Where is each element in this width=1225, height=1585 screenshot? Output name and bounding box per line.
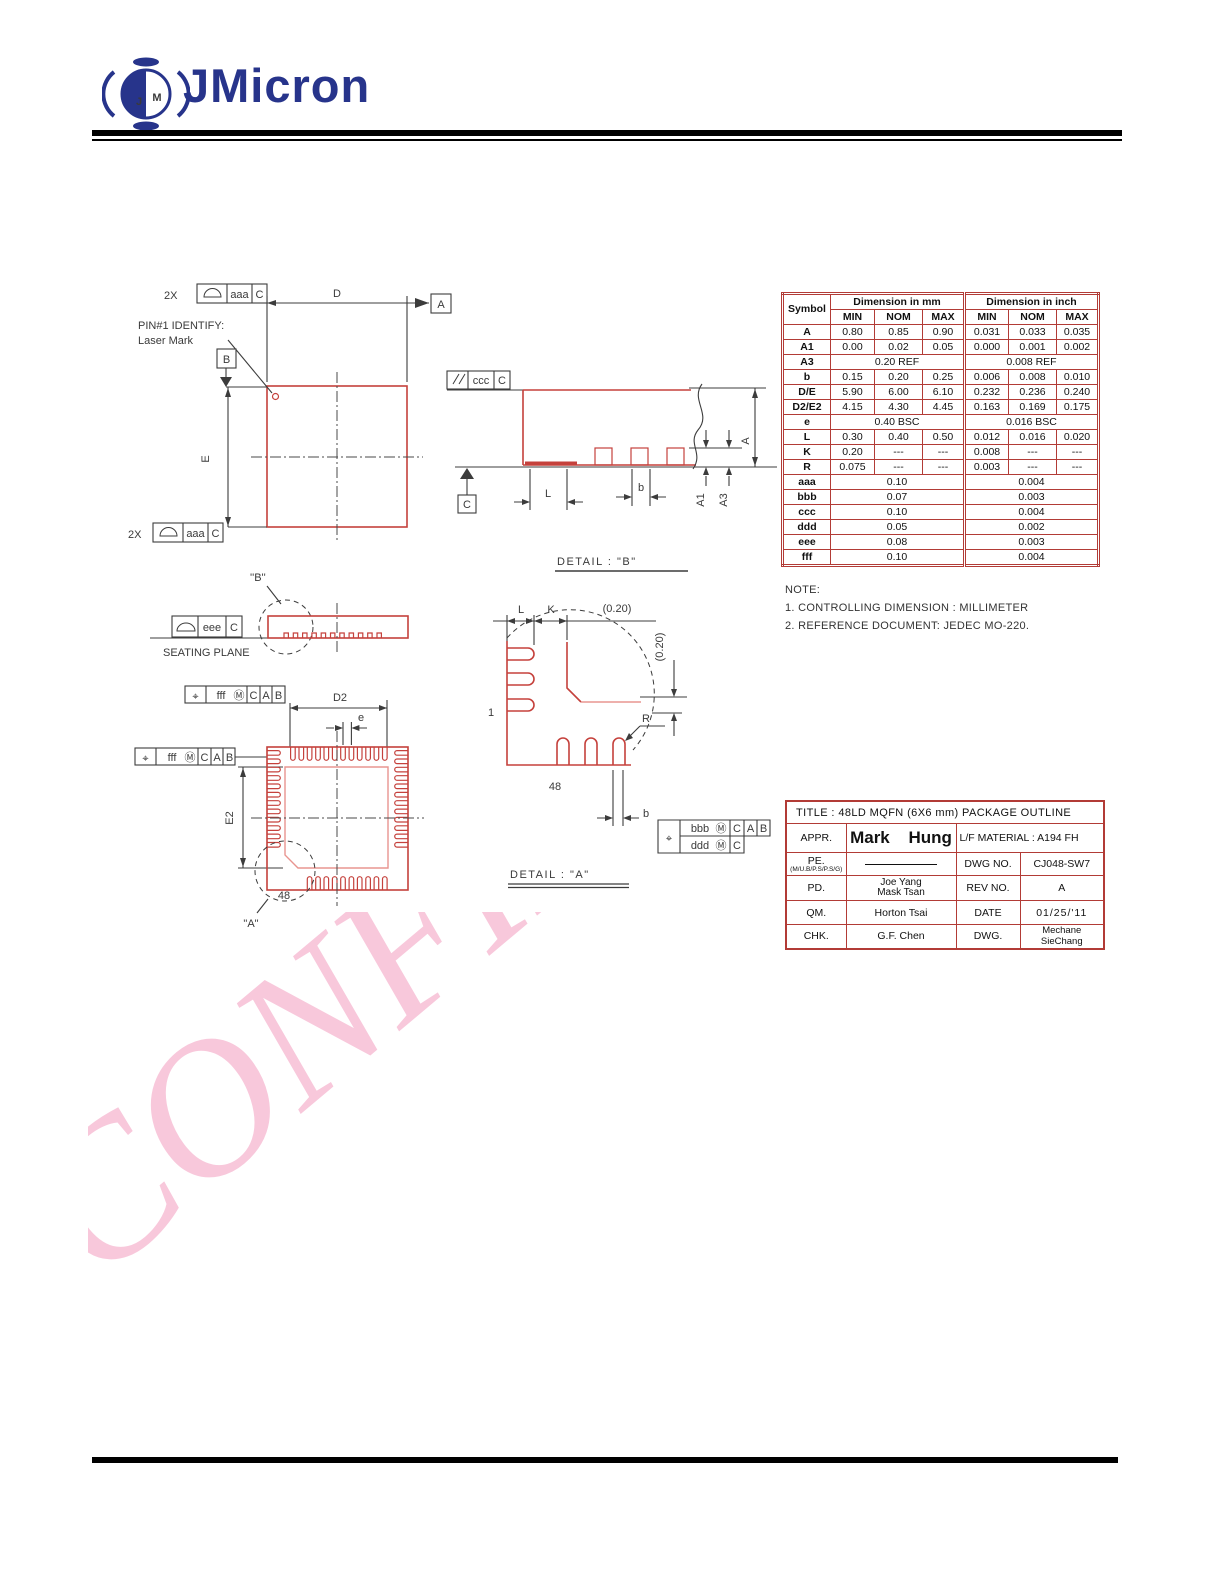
fcf-aaa-value: aaa [186,528,205,540]
datum-triangle-icon [415,298,429,308]
min-header-cell: MIN [831,310,875,325]
value-cell: 0.016 [1009,430,1057,445]
footer-rule [92,1457,1118,1463]
value-cell: 0.50 [923,430,965,445]
value-cell: 6.00 [875,385,923,400]
fcf-datum-ref: C [498,375,506,387]
symbol-cell: D2/E2 [783,400,831,415]
detail-a-ref: "A" [243,918,258,930]
symbol-cell: aaa [783,475,831,490]
lead-pattern-right [395,751,408,848]
symbol-cell: b [783,370,831,385]
pin48-label: 48 [278,890,290,902]
value-cell: 0.80 [831,325,875,340]
r-leader [628,726,665,738]
lk-dimension-lines [493,615,656,645]
fcf-datum-ref: B [226,752,233,764]
e2-dim-label: E2 [224,811,236,824]
value-cell: 0.016 BSC [965,415,1099,430]
lf-material-cell: L/F MATERIAL : A194 FH [956,824,1104,853]
logo-letter-j: J [136,96,142,108]
arrowhead [225,388,231,397]
ref-020-vertical: (0.20) [654,633,666,662]
symbol-cell: bbb [783,490,831,505]
pin1-mark [273,394,279,400]
lead-pattern-top [291,747,388,760]
arrowhead [726,440,732,448]
symbol-cell: D/E [783,385,831,400]
datum-b-label: B [223,354,230,366]
table-row: K 0.20 --- --- 0.008 --- --- [783,445,1099,460]
l-dim-label: L [518,604,524,616]
arrowhead [559,618,567,624]
arrowhead [522,499,530,505]
dwg-no-value-cell: CJ048-SW7 [1020,853,1104,876]
value-cell: 0.003 [965,460,1009,475]
value-cell: 0.001 [1009,340,1057,355]
fcf-aaa-value: aaa [230,289,249,301]
dimension-table: Symbol Dimension in mm Dimension in inch… [781,292,1100,567]
value-cell: --- [923,445,965,460]
value-cell: --- [875,460,923,475]
table-row: APPR. Mark Hung L/F MATERIAL : A194 FH [786,824,1104,853]
value-cell: 0.010 [1057,370,1099,385]
lead-pattern-bottom [557,738,625,765]
symbol-cell: A1 [783,340,831,355]
value-cell: 0.035 [1057,325,1099,340]
qm-value-cell: Horton Tsai [846,901,956,925]
e-dim-label: e [358,712,364,724]
ref-020-horizontal: (0.20) [603,603,632,615]
nom-header-cell: NOM [875,310,923,325]
datum-a-label: A [437,299,445,311]
top-view-drawing: PIN#1 IDENTIFY: Laser Mark D A B E 2X aa… [118,268,466,568]
mmc-modifier-icon: Ⓜ [185,751,196,764]
value-cell: 0.004 [965,550,1099,566]
table-row: L 0.30 0.40 0.50 0.012 0.016 0.020 [783,430,1099,445]
arrowhead [624,494,632,500]
value-cell: 0.20 [875,370,923,385]
inch-header-cell: Dimension in inch [965,294,1099,310]
detail-a-drawing: L K (0.20) (0.20) R 1 48 b ⌖ bbb Ⓜ C A B… [453,573,788,895]
chk-label-cell: CHK. [786,925,846,949]
symbol-cell: R [783,460,831,475]
value-cell: 0.30 [831,430,875,445]
break-line [693,384,703,469]
table-row: MIN NOM MAX MIN NOM MAX [783,310,1099,325]
value-cell: 0.000 [965,340,1009,355]
value-cell: 5.90 [831,385,875,400]
detail-b-ref: ''B'' [250,572,266,584]
chk-value-cell: G.F. Chen [846,925,956,949]
table-row: QM. Horton Tsai DATE 01/25/'11 [786,901,1104,925]
fcf-datum-ref: C [201,752,209,764]
qm-label-cell: QM. [786,901,846,925]
table-row: D2/E2 4.15 4.30 4.45 0.163 0.169 0.175 [783,400,1099,415]
value-cell: 4.45 [923,400,965,415]
table-row: fff 0.10 0.004 [783,550,1099,566]
value-cell: 0.15 [831,370,875,385]
value-cell: 0.002 [1057,340,1099,355]
value-cell: 0.020 [1057,430,1099,445]
value-cell: 0.169 [1009,400,1057,415]
lead [667,448,684,465]
min-header-cell: MIN [965,310,1009,325]
value-cell: 0.07 [831,490,965,505]
title-underline [508,884,629,888]
value-cell: 0.008 [965,445,1009,460]
value-cell: 0.175 [1057,400,1099,415]
datasheet-page: J M JMicron PIN#1 IDENTIFY: Laser Mark D… [0,0,1225,1585]
detail-b-title: DETAIL : "B" [557,556,637,568]
fcf-datum-ref: C [733,840,741,852]
title-cell: TITLE : 48LD MQFN (6X6 mm) PACKAGE OUTLI… [786,801,1104,824]
position-tolerance-icon: ⌖ [666,833,672,845]
table-row: PD. Joe Yang Mask Tsan REV NO. A [786,876,1104,901]
fcf-datum-ref: C [212,528,220,540]
pad-corner-chamfer [567,642,581,702]
value-cell: 0.20 REF [831,355,965,370]
header-rule-thin [92,139,1122,141]
logo-left-arc [103,72,114,116]
b-dim-label: b [638,482,644,494]
detail-leader [257,899,268,913]
value-cell: 0.003 [965,490,1099,505]
arrowhead [267,300,276,306]
value-cell: 0.05 [923,340,965,355]
value-cell: 0.163 [965,400,1009,415]
value-cell: --- [923,460,965,475]
logo-top-lens [133,58,159,67]
brand-wordmark: JMicron [183,58,370,113]
arrowhead [726,467,732,475]
rev-value-cell: A [1020,876,1104,901]
table-row: A1 0.00 0.02 0.05 0.000 0.001 0.002 [783,340,1099,355]
value-cell: 0.40 [875,430,923,445]
arrowhead [567,499,575,505]
arrowhead [351,725,359,731]
pe-label-cell: PE. (M/U.B/P.S/P.S/G) [786,853,846,876]
fcf-datum-ref: C [733,823,741,835]
k-dim-label: K [547,604,555,616]
b-dim-label: b [643,808,649,820]
value-cell: --- [1057,460,1099,475]
table-row: e 0.40 BSC 0.016 BSC [783,415,1099,430]
mmc-modifier-icon: Ⓜ [716,822,727,835]
a1-dim-label: A1 [695,493,707,506]
arrowhead [240,858,246,867]
datum-triangle-icon [460,468,474,479]
arrowhead [534,618,542,624]
arrowhead [703,467,709,475]
bottom-view-drawing: ⌖ fff Ⓜ C A B D2 e ⌖ fff Ⓜ C A B E2 [126,666,446,936]
fcf-datum-ref: C [256,289,264,301]
arrowhead [335,725,343,731]
table-row: b 0.15 0.20 0.25 0.006 0.008 0.010 [783,370,1099,385]
logo-half-disc [122,70,146,118]
r-dim-label: R [642,713,650,725]
package-side-profile [523,390,696,465]
symbol-cell: L [783,430,831,445]
fcf-datum-ref: A [747,823,755,835]
table-row: ddd 0.05 0.002 [783,520,1099,535]
fcf-datum-ref: A [262,690,270,702]
value-cell: --- [875,445,923,460]
value-cell: 0.02 [875,340,923,355]
note-item: 2. REFERENCE DOCUMENT: JEDEC MO-220. [785,619,1029,633]
arrowhead [379,705,387,711]
detail-boundary-arc [507,610,654,750]
arrowhead [526,618,534,624]
d-dim-label: D [333,288,341,300]
value-cell: 0.232 [965,385,1009,400]
arrowhead [225,517,231,526]
arrowhead [671,689,677,697]
l-dim-label: L [545,488,551,500]
fcf-fff-value: fff [217,690,227,702]
rev-label-cell: REV NO. [956,876,1020,901]
pin1-note-line2: Laser Mark [138,335,194,347]
dwg-value-cell: Mechane SieChang [1020,925,1104,949]
value-cell: 0.002 [965,520,1099,535]
symbol-cell: K [783,445,831,460]
arrowhead [240,768,246,777]
value-cell: 0.08 [831,535,965,550]
detail-a-title: DETAIL : "A" [510,869,590,881]
max-header-cell: MAX [923,310,965,325]
symbol-cell: A3 [783,355,831,370]
value-cell: 0.10 [831,550,965,566]
table-row: bbb 0.07 0.003 [783,490,1099,505]
fcf-ddd-value: ddd [691,840,709,852]
max-header-cell: MAX [1057,310,1099,325]
b-dimension-lines [597,770,639,826]
value-cell: 0.240 [1057,385,1099,400]
value-cell: 0.40 BSC [831,415,965,430]
value-cell: 0.05 [831,520,965,535]
value-cell: 0.85 [875,325,923,340]
pin1-label: 1 [488,707,494,719]
value-cell: --- [1009,460,1057,475]
value-cell: 0.004 [965,475,1099,490]
mm-header-cell: Dimension in mm [831,294,965,310]
value-cell: 0.075 [831,460,875,475]
mmc-modifier-icon: Ⓜ [234,689,245,702]
pe-value-cell [846,853,956,876]
value-cell: --- [1009,445,1057,460]
arrowhead [605,815,613,821]
logo-letter-m: M [152,92,161,104]
value-cell: 0.008 [1009,370,1057,385]
table-row: Symbol Dimension in mm Dimension in inch [783,294,1099,310]
dwg-no-label-cell: DWG NO. [956,853,1020,876]
notes-heading: NOTE: [785,583,1029,597]
appr-label-cell: APPR. [786,824,846,853]
pd-name: Mask Tsan [850,888,953,898]
fcf-eee-value: eee [203,622,221,634]
table-row: A3 0.20 REF 0.008 REF [783,355,1099,370]
arrowhead [290,705,298,711]
detail-b-circle [259,600,313,654]
symbol-cell: e [783,415,831,430]
value-cell: 6.10 [923,385,965,400]
table-row: aaa 0.10 0.004 [783,475,1099,490]
value-cell: 0.90 [923,325,965,340]
value-cell: 0.003 [965,535,1099,550]
qty-label: 2X [128,529,142,541]
a-dim-label: A [740,437,752,445]
confidential-watermark: CONFIDENTIAL [88,912,668,1309]
e-dim-label: E [200,455,212,462]
fcf-ccc-value: ccc [473,375,490,387]
pe-blank-line [865,864,937,865]
lead [631,448,648,465]
value-cell: 0.033 [1009,325,1057,340]
value-cell: 4.30 [875,400,923,415]
qty-label: 2X [164,290,178,302]
fcf-datum-ref: C [250,690,258,702]
arrowhead [752,389,758,398]
d2-dimension-lines [290,700,387,747]
jmicron-logo-icon: J M [102,52,190,132]
datum-c-label: C [463,499,471,511]
lead-pattern-left [267,751,280,848]
pin48-label: 48 [549,781,561,793]
a3-dim-label: A3 [718,493,730,506]
symbol-cell: ccc [783,505,831,520]
table-row: CHK. G.F. Chen DWG. Mechane SieChang [786,925,1104,949]
side-view-drawing: ccc C C L b A1 A3 [438,358,788,582]
date-value-cell: 01/25/'11 [1020,901,1104,925]
table-row: D/E 5.90 6.00 6.10 0.232 0.236 0.240 [783,385,1099,400]
arrowhead [650,494,658,500]
value-cell: 0.25 [923,370,965,385]
mmc-modifier-icon: Ⓜ [716,839,727,852]
table-row: TITLE : 48LD MQFN (6X6 mm) PACKAGE OUTLI… [786,801,1104,824]
fcf-datum-ref: C [230,622,238,634]
arrowhead [752,457,758,466]
symbol-cell: A [783,325,831,340]
pe-sublabel: (M/U.B/P.S/P.S/G) [790,867,843,873]
value-cell: 0.00 [831,340,875,355]
value-cell: 0.10 [831,505,965,520]
seating-plane-view: ''B'' eee C SEATING PLANE [138,543,438,683]
lead-pattern-bottom [307,877,387,890]
value-cell: 0.006 [965,370,1009,385]
pd-label-cell: PD. [786,876,846,901]
date-label-cell: DATE [956,901,1020,925]
nom-header-cell: NOM [1009,310,1057,325]
note-item: 1. CONTROLLING DIMENSION : MILLIMETER [785,601,1029,615]
value-cell: 0.031 [965,325,1009,340]
appr-value-cell: Mark Hung [846,824,956,853]
header-rule-thick [92,130,1122,136]
value-cell: 0.004 [965,505,1099,520]
fcf-datum-ref: A [213,752,221,764]
fcf-fff-value: fff [168,752,178,764]
lead-pattern-left [507,648,534,711]
d-dimension-lines [267,296,429,382]
lead [595,448,612,465]
fcf-bbb-value: bbb [691,823,709,835]
value-cell: 0.012 [965,430,1009,445]
table-row: R 0.075 --- --- 0.003 --- --- [783,460,1099,475]
title-block: TITLE : 48LD MQFN (6X6 mm) PACKAGE OUTLI… [785,800,1105,950]
position-tolerance-icon: ⌖ [192,691,198,703]
pin1-note-line1: PIN#1 IDENTIFY: [138,320,224,332]
d2-dim-label: D2 [333,692,347,704]
arrowhead [623,815,631,821]
arrowhead [507,618,515,624]
dwg-label-cell: DWG. [956,925,1020,949]
watermark-clip: CONFIDENTIAL [88,912,668,1367]
position-tolerance-icon: ⌖ [142,753,148,765]
symbol-cell: fff [783,550,831,566]
value-cell: 4.15 [831,400,875,415]
value-cell: 0.10 [831,475,965,490]
notes-block: NOTE: 1. CONTROLLING DIMENSION : MILLIME… [785,583,1029,633]
datum-triangle-icon [220,377,232,387]
table-row: eee 0.08 0.003 [783,535,1099,550]
value-cell: 0.008 REF [965,355,1099,370]
symbol-cell: ddd [783,520,831,535]
table-row: PE. (M/U.B/P.S/P.S/G) DWG NO. CJ048-SW7 [786,853,1104,876]
seating-plane-caption: SEATING PLANE [163,647,250,659]
symbol-cell: eee [783,535,831,550]
symbol-header-cell: Symbol [783,294,831,325]
arrowhead [703,440,709,448]
table-row: ccc 0.10 0.004 [783,505,1099,520]
arrowhead [671,713,677,721]
value-cell: --- [1057,445,1099,460]
e-dimension-lines [326,722,367,745]
table-row: A 0.80 0.85 0.90 0.031 0.033 0.035 [783,325,1099,340]
fcf-datum-ref: B [275,690,282,702]
pd-value-cell: Joe Yang Mask Tsan [846,876,956,901]
value-cell: 0.236 [1009,385,1057,400]
fcf-datum-ref: B [760,823,767,835]
value-cell: 0.20 [831,445,875,460]
